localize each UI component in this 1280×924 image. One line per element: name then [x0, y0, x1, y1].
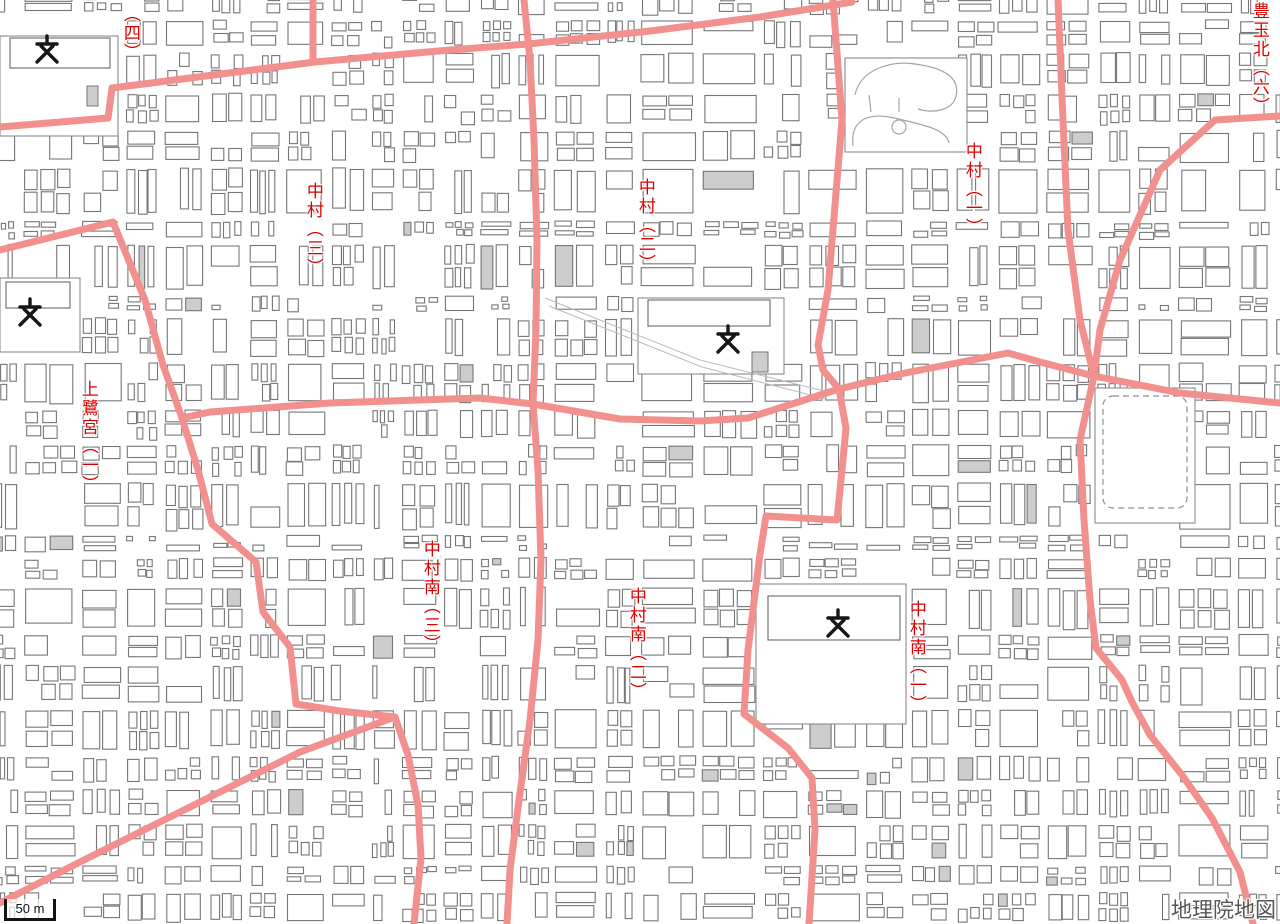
map-canvas[interactable]: （四）豊玉北（六）中村（三）中村（二）中村（一）上鷺宮（一）中村南（三）中村南（…	[0, 0, 1280, 924]
map-attribution-link[interactable]: 地理院地図	[1171, 894, 1276, 924]
basemap-svg	[0, 0, 1280, 924]
scale-bar-rule: 50 m	[4, 899, 56, 921]
scale-bar-label: 50 m	[16, 901, 45, 916]
scale-bar: 50 m	[4, 899, 56, 921]
